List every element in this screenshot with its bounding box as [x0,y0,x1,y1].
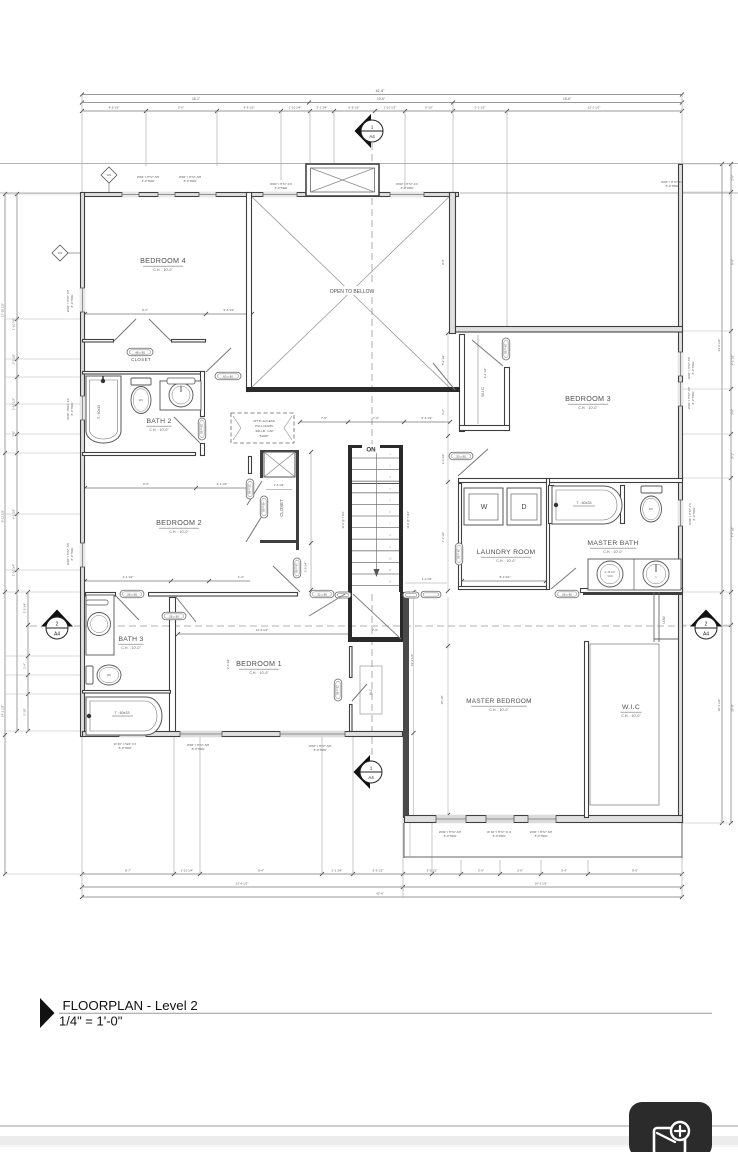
svg-text:28 x 80: 28 x 80 [336,685,340,695]
svg-text:17'-10 1/2": 17'-10 1/2" [1,303,5,317]
svg-text:WC: WC [649,507,653,511]
svg-text:2'-6": 2'-6" [731,175,735,181]
svg-text:60 x 80: 60 x 80 [223,374,233,378]
svg-text:BEDROOM 2: BEDROOM 2 [156,518,202,527]
svg-text:7'-6": 7'-6" [373,416,379,420]
svg-text:3'-9": 3'-9" [731,409,735,415]
svg-text:8'-0"HDR: 8'-0"HDR [70,294,74,308]
svg-text:W.I.C: W.I.C [622,704,640,711]
svg-text:16 R @ 7 3/4": 16 R @ 7 3/4" [341,511,345,529]
svg-text:VAN: VAN [607,574,612,578]
svg-text:2'-1 3/4": 2'-1 3/4" [317,106,328,110]
svg-text:15'-10": 15'-10" [440,696,444,705]
svg-text:1'-10 1/4": 1'-10 1/4" [181,869,194,873]
svg-text:PULL DOWN: PULL DOWN [255,424,273,428]
svg-text:2: 2 [705,622,708,628]
svg-text:LOW: LOW [662,616,666,623]
svg-text:A4: A4 [703,632,709,638]
svg-text:8'-0"HDR: 8'-0"HDR [70,547,74,561]
svg-text:LAUNDRY ROOM: LAUNDRY ROOM [477,549,536,556]
svg-text:2'-10": 2'-10" [23,708,27,715]
svg-text:8'-0"HDR: 8'-0"HDR [535,834,549,838]
svg-text:3'-9 3/4": 3'-9 3/4" [304,562,308,573]
svg-text:1'-4 1/2": 1'-4 1/2" [422,577,433,581]
svg-text:16'-1": 16'-1" [192,97,200,101]
svg-text:BATH 3: BATH 3 [118,636,143,643]
svg-text:28 x 80: 28 x 80 [127,592,137,596]
svg-text:9'-8": 9'-8" [441,259,445,265]
svg-text:16'-3 1/2": 16'-3 1/2" [535,882,548,886]
svg-text:30 x 80: 30 x 80 [456,454,466,458]
svg-text:C.H. : 10'-0": C.H. : 10'-0" [169,530,189,534]
svg-text:9'-6 1/2": 9'-6 1/2" [226,659,230,670]
svg-text:5'-6 1/2": 5'-6 1/2" [422,416,433,420]
svg-text:WC: WC [139,398,143,402]
svg-text:4'-6 1/2": 4'-6 1/2" [109,106,120,110]
svg-text:9'-6": 9'-6" [632,869,638,873]
svg-text:8'-0"HDR: 8'-0"HDR [493,834,507,838]
svg-text:8'-0"HDR: 8'-0"HDR [192,747,206,751]
svg-text:W1: W1 [58,251,63,255]
svg-text:BEDROOM 3: BEDROOM 3 [565,394,611,403]
svg-text:2'-6": 2'-6" [478,869,484,873]
svg-text:4'-1 1/2": 4'-1 1/2" [123,575,134,579]
svg-text:BATH 2: BATH 2 [146,418,171,425]
svg-text:7'-6": 7'-6" [372,628,378,632]
svg-text:6'-8 1/2": 6'-8 1/2" [349,106,360,110]
svg-text:8'-4": 8'-4" [258,869,264,873]
svg-text:24 x 80: 24 x 80 [504,344,508,354]
svg-text:9'-11 1/2": 9'-11 1/2" [1,510,5,522]
svg-text:C.H. : 10'-0": C.H. : 10'-0" [578,406,598,410]
svg-text:W.I.C: W.I.C [480,387,485,397]
svg-text:A4: A4 [368,775,374,780]
svg-text:15'-6": 15'-6" [563,97,571,101]
svg-text:1: 1 [371,125,374,130]
svg-text:32 x 80: 32 x 80 [317,592,327,596]
svg-text:1'-10 1/2": 1'-10 1/2" [384,106,397,110]
svg-text:48 x 80: 48 x 80 [135,350,145,354]
svg-text:8'-0"HDR: 8'-0"HDR [142,179,156,183]
svg-text:C.H. : 10'-0": C.H. : 10'-0" [153,268,173,272]
svg-text:MASTER BATH: MASTER BATH [587,540,638,547]
svg-text:T : 60x33: T : 60x33 [97,405,101,419]
svg-text:T : 60x33: T : 60x33 [115,711,130,715]
svg-text:2'-4 1/2": 2'-4 1/2" [274,483,285,487]
svg-text:A4: A4 [369,134,375,139]
svg-text:8'-3 3/4": 8'-3 3/4" [500,575,511,579]
svg-text:T : 60x33: T : 60x33 [577,501,592,505]
svg-text:7'-7 1/2": 7'-7 1/2" [441,532,445,543]
svg-text:9'-6": 9'-6" [731,259,735,265]
svg-text:WC: WC [107,673,111,677]
svg-text:8'-0"HER: 8'-0"HER [275,186,288,190]
svg-text:5'-0": 5'-0" [178,106,184,110]
svg-text:8'-0"HDR: 8'-0"HDR [119,746,133,750]
svg-text:W1: W1 [107,173,112,177]
svg-text:C.H. : 10'-0": C.H. : 10'-0" [496,559,516,563]
svg-text:28 x 80: 28 x 80 [562,592,572,596]
svg-text:1/4" = 1'-0": 1/4" = 1'-0" [59,1014,123,1029]
svg-text:14'-1 1/2": 14'-1 1/2" [1,705,5,718]
svg-text:W: W [481,504,488,511]
svg-text:4'-1 1/2": 4'-1 1/2" [217,482,228,486]
svg-text:8'-0"HDR: 8'-0"HDR [70,402,74,416]
svg-text:ATTIC ACCESS: ATTIC ACCESS [253,419,274,423]
svg-text:12'-2 1/2": 12'-2 1/2" [588,106,601,110]
svg-text:8'-0"HDR: 8'-0"HDR [314,748,328,752]
svg-text:22'-0": 22'-0" [731,704,735,711]
svg-text:2'-1 3/4": 2'-1 3/4" [332,869,343,873]
svg-text:8'-0"HDR: 8'-0"HDR [666,184,680,188]
svg-text:FLOORPLAN - Level 2: FLOORPLAN - Level 2 [63,998,198,1013]
svg-text:22'-6 1/2": 22'-6 1/2" [236,882,249,886]
svg-text:4'-6 1/2": 4'-6 1/2" [244,106,255,110]
svg-text:8'-0"HDR: 8'-0"HDR [691,361,695,375]
svg-text:1'-6": 1'-6" [238,575,244,579]
svg-text:BEDROOM 1: BEDROOM 1 [236,659,282,668]
svg-text:2: 2 [56,622,59,628]
svg-text:28 x 80: 28 x 80 [169,614,179,618]
svg-text:1'-4": 1'-4" [23,663,27,669]
svg-text:C.H. : 10'-0": C.H. : 10'-0" [621,714,641,718]
svg-text:C.H. : 10'-0": C.H. : 10'-0" [489,708,509,712]
svg-text:24 x 80: 24 x 80 [457,549,461,559]
svg-text:CLOSET: CLOSET [279,499,284,517]
svg-text:3'-3 1/2": 3'-3 1/2" [441,454,445,465]
svg-text:2'-2 3/4": 2'-2 3/4" [23,603,27,614]
svg-text:2'-2 1/2": 2'-2 1/2" [475,106,486,110]
svg-text:18'-1 1/2": 18'-1 1/2" [717,699,721,712]
svg-text:8'-0"HDR: 8'-0"HDR [692,507,696,521]
svg-text:CLOSET: CLOSET [131,357,151,362]
svg-text:28 x 80: 28 x 80 [200,424,204,434]
svg-text:8'-0"HDR: 8'-0"HDR [691,391,695,405]
svg-text:3'-1": 3'-1" [731,453,735,459]
svg-text:C.H. : 10'-0": C.H. : 10'-0" [149,428,169,432]
svg-text:8'-0"HDR: 8'-0"HDR [401,186,415,190]
svg-text:42'-6": 42'-6" [376,892,384,896]
svg-text:D: D [521,504,526,511]
svg-text:C.H. : 10'-0": C.H. : 10'-0" [603,550,623,554]
svg-text:48 x 80: 48 x 80 [262,502,266,512]
svg-text:'SHOP': 'SHOP' [259,434,269,438]
svg-text:18 x 80: 18 x 80 [295,563,299,573]
svg-text:1: 1 [370,766,373,771]
svg-text:4'-10 1/2": 4'-10 1/2" [605,570,616,574]
svg-text:9'-2": 9'-2" [142,308,148,312]
svg-text:3'-4": 3'-4" [561,869,567,873]
svg-text:28 x 80: 28 x 80 [248,484,252,494]
svg-text:7'-6": 7'-6" [321,416,327,420]
svg-text:42'-6": 42'-6" [376,89,385,93]
svg-text:5'-6 1/2": 5'-6 1/2" [224,308,235,312]
svg-text:BEDROOM 4: BEDROOM 4 [140,256,186,265]
svg-text:8'-0"HDR: 8'-0"HDR [444,834,458,838]
svg-text:2'-1 1/2": 2'-1 1/2" [483,368,487,379]
svg-text:1'-10 7/8": 1'-10 7/8" [12,318,16,330]
svg-text:5'-2 1/2": 5'-2 1/2" [441,355,445,366]
svg-text:MASTER BEDROOM: MASTER BEDROOM [466,698,532,705]
svg-text:A4: A4 [54,632,60,638]
svg-text:9'-0": 9'-0" [143,482,149,486]
svg-text:7'-7 1/2": 7'-7 1/2" [731,527,735,538]
svg-text:5'-10": 5'-10" [425,106,433,110]
svg-text:ON: ON [366,447,376,454]
svg-text:2'-6": 2'-6" [517,869,523,873]
svg-text:4'-2": 4'-2" [441,409,445,415]
svg-text:12'-6 1/2": 12'-6 1/2" [256,628,269,632]
svg-text:8'-0"HDR: 8'-0"HDR [184,179,198,183]
svg-text:16 R @ 7 3/4": 16 R @ 7 3/4" [406,511,410,529]
svg-text:C.H. : 10'-0": C.H. : 10'-0" [121,646,141,650]
svg-text:4'-2 1/2": 4'-2 1/2" [731,355,735,366]
svg-text:8'-7": 8'-7" [125,869,131,873]
svg-text:OPEN TO BELLOW: OPEN TO BELLOW [330,289,375,295]
svg-text:.300 LB . CAP: .300 LB . CAP [254,429,273,433]
svg-text:W.C: W.C [369,688,373,695]
svg-text:C.H. : 10'-0": C.H. : 10'-0" [249,671,269,675]
svg-text:1'-10 1/4": 1'-10 1/4" [289,106,302,110]
svg-text:10'-6": 10'-6" [377,97,385,101]
svg-text:3'-6 1/2": 3'-6 1/2" [373,869,384,873]
svg-text:23'-6 1/2": 23'-6 1/2" [717,339,721,352]
